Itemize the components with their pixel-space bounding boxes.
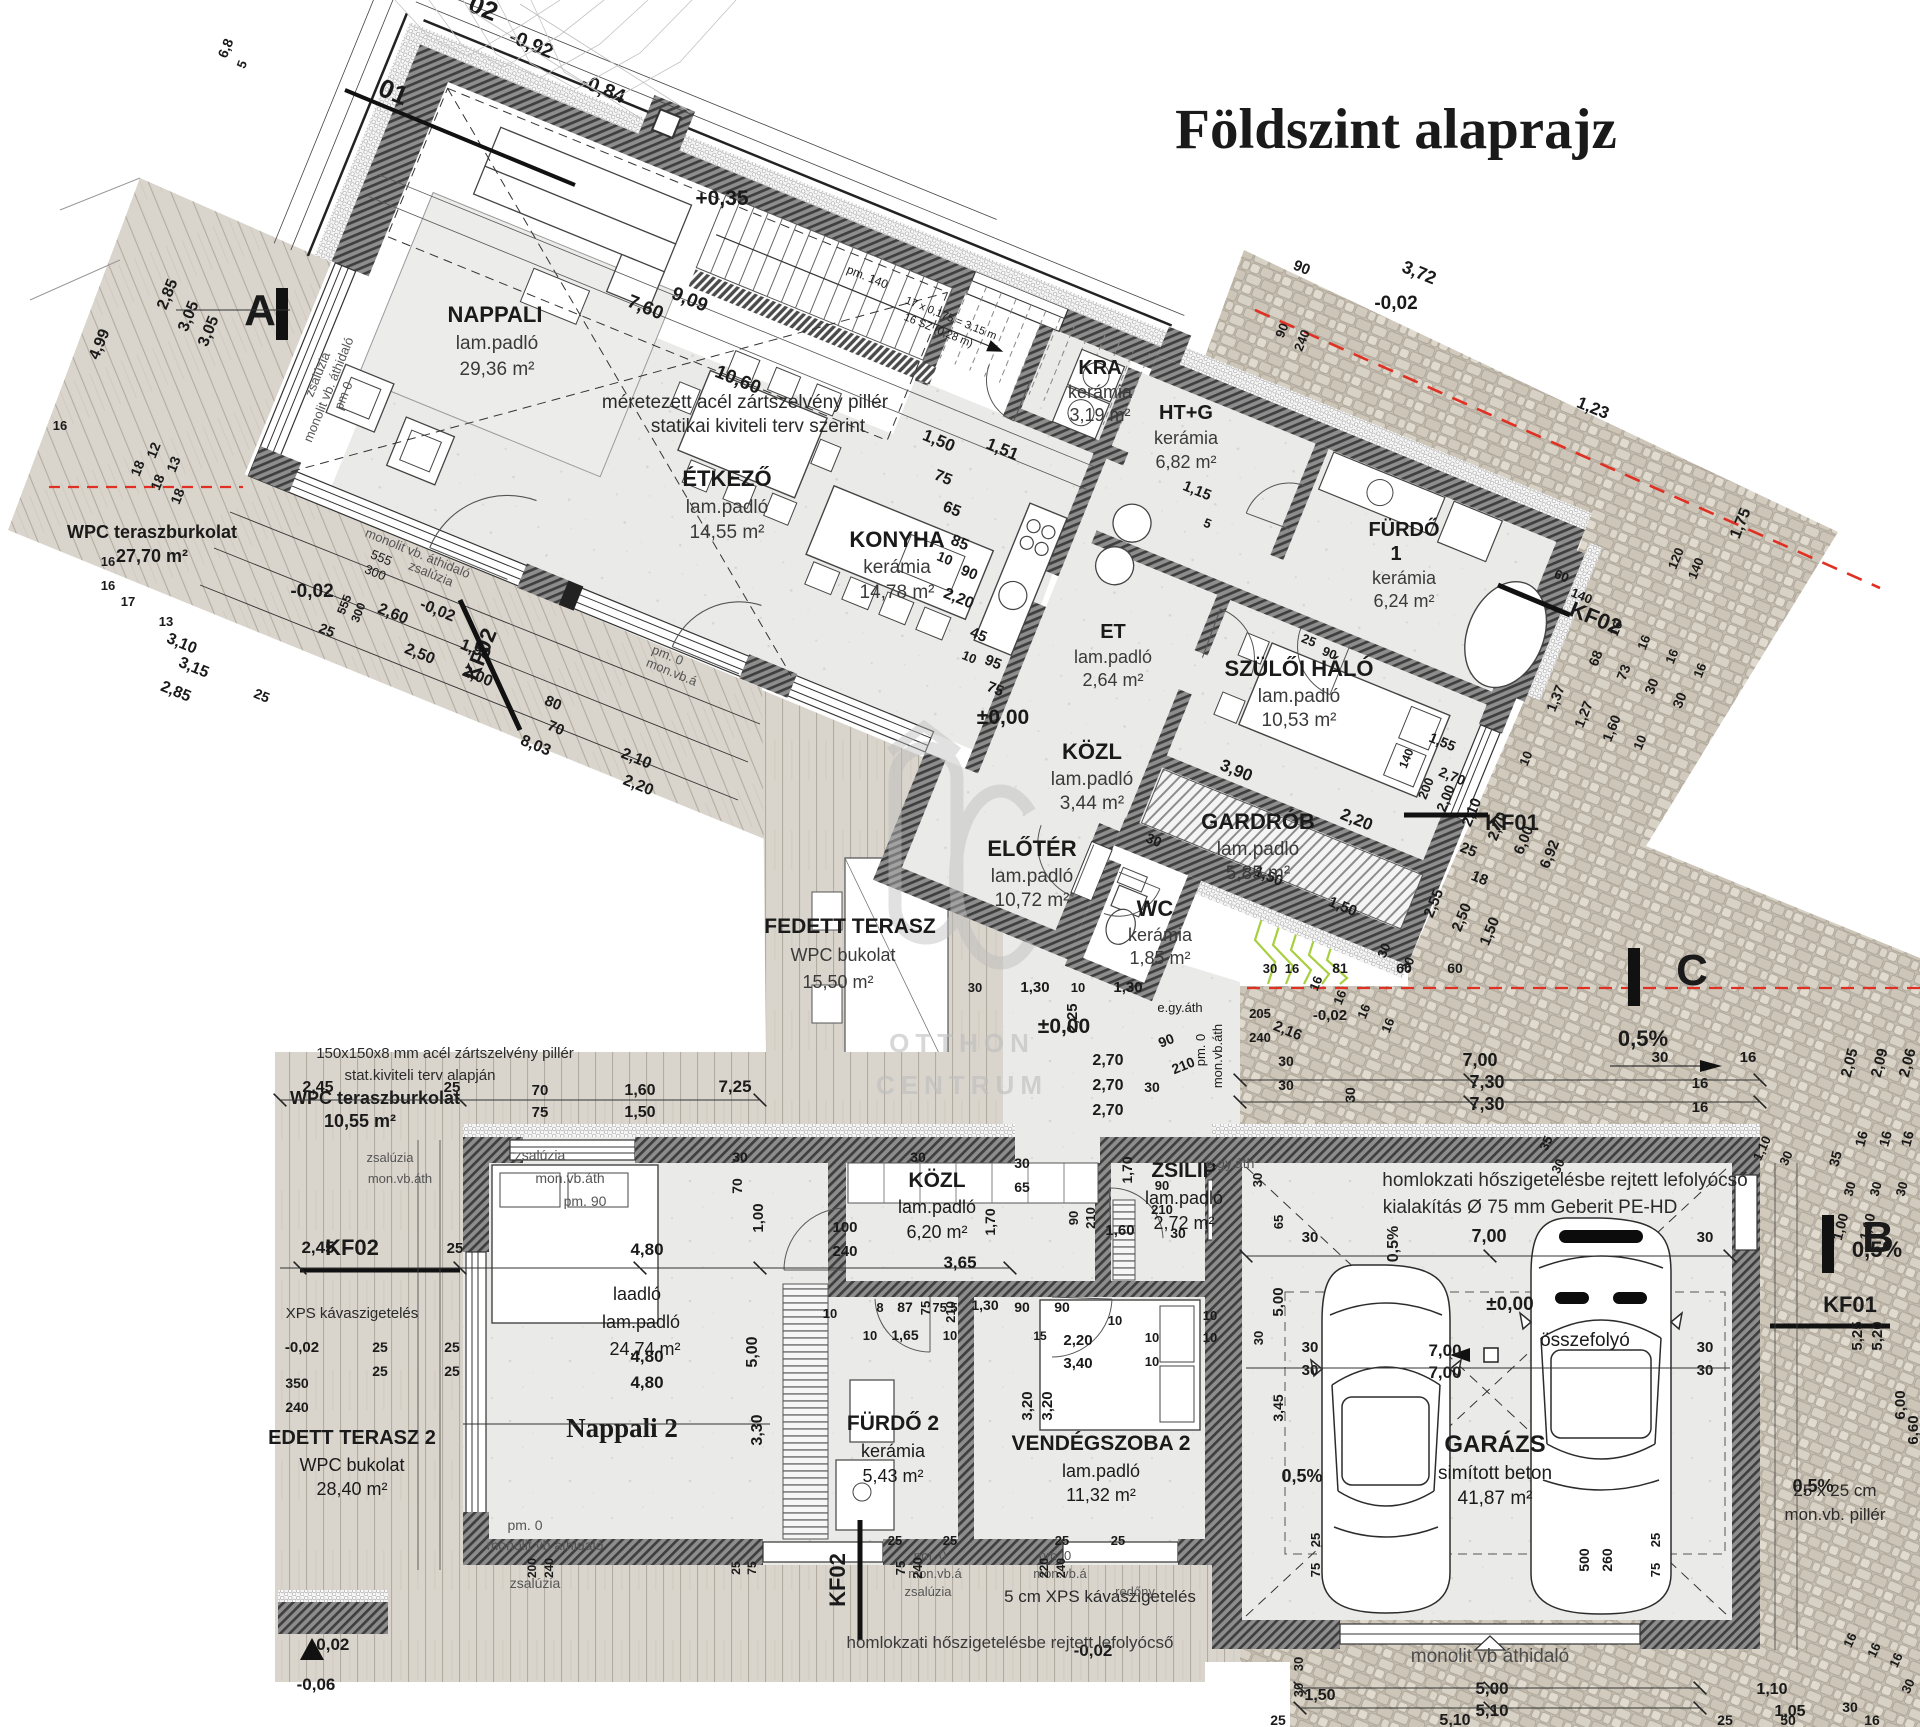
svg-text:2,25: 2,25 xyxy=(1064,1003,1081,1032)
svg-text:pm. 90: pm. 90 xyxy=(564,1193,607,1209)
svg-text:350: 350 xyxy=(285,1375,309,1391)
svg-text:5,00: 5,00 xyxy=(744,1336,761,1367)
svg-text:28,40 m²: 28,40 m² xyxy=(316,1479,387,1499)
svg-text:13: 13 xyxy=(159,614,173,629)
svg-text:81: 81 xyxy=(1332,960,1348,976)
svg-text:KÖZL: KÖZL xyxy=(908,1169,965,1192)
svg-text:30: 30 xyxy=(1697,1339,1714,1356)
svg-text:zsalúzia: zsalúzia xyxy=(515,1147,566,1163)
svg-text:90: 90 xyxy=(1014,1299,1030,1315)
svg-text:XPS kávaszigetelés: XPS kávaszigetelés xyxy=(286,1305,419,1322)
svg-text:1,60: 1,60 xyxy=(1105,1222,1134,1239)
svg-text:25: 25 xyxy=(372,1363,388,1379)
svg-text:30: 30 xyxy=(1342,1087,1358,1103)
svg-text:WPC teraszburkolat: WPC teraszburkolat xyxy=(67,522,237,542)
svg-text:0,5%: 0,5% xyxy=(1618,1026,1668,1051)
svg-text:+0,35: +0,35 xyxy=(695,187,748,210)
svg-text:27,70 m²: 27,70 m² xyxy=(116,546,188,566)
svg-text:5,25: 5,25 xyxy=(1849,1321,1866,1350)
svg-text:±0,00: ±0,00 xyxy=(977,706,1029,729)
svg-text:6,20 m²: 6,20 m² xyxy=(906,1222,967,1242)
svg-text:zsalúzia: zsalúzia xyxy=(905,1584,953,1599)
svg-text:30: 30 xyxy=(1302,1229,1319,1246)
svg-text:lam.padló: lam.padló xyxy=(1074,647,1152,667)
svg-text:kialakítás Ø 75 mm Geberit PE-: kialakítás Ø 75 mm Geberit PE-HD xyxy=(1383,1197,1678,1218)
svg-text:-0,02: -0,02 xyxy=(290,581,333,602)
svg-text:1,00: 1,00 xyxy=(750,1203,767,1232)
svg-text:KF01: KF01 xyxy=(1823,1292,1877,1317)
svg-text:75: 75 xyxy=(893,1561,908,1575)
svg-text:70: 70 xyxy=(532,1082,549,1099)
svg-text:5,43 m²: 5,43 m² xyxy=(862,1466,923,1486)
svg-text:GARÁZS: GARÁZS xyxy=(1444,1430,1545,1458)
svg-text:pm. 0: pm. 0 xyxy=(507,1517,542,1533)
svg-text:15,50 m²: 15,50 m² xyxy=(802,972,873,992)
svg-text:75: 75 xyxy=(918,1301,933,1315)
svg-text:25: 25 xyxy=(1308,1533,1323,1547)
svg-text:kerámia: kerámia xyxy=(1372,568,1437,588)
svg-text:1,70: 1,70 xyxy=(982,1208,998,1235)
svg-text:70: 70 xyxy=(729,1178,745,1194)
svg-text:30: 30 xyxy=(1697,1362,1714,1379)
svg-text:kerámia: kerámia xyxy=(1128,925,1193,945)
svg-text:16: 16 xyxy=(101,554,115,569)
svg-text:1,60: 1,60 xyxy=(624,1082,655,1099)
svg-text:e.gy.áth: e.gy.áth xyxy=(1157,1000,1202,1015)
svg-text:10: 10 xyxy=(943,1328,957,1343)
svg-text:OTTHON: OTTHON xyxy=(889,1028,1035,1058)
svg-text:6,24 m²: 6,24 m² xyxy=(1373,591,1434,611)
svg-text:2,20: 2,20 xyxy=(1063,1332,1092,1349)
svg-text:6,82 m²: 6,82 m² xyxy=(1155,452,1216,472)
svg-text:5 cm XPS kávaszigetelés: 5 cm XPS kávaszigetelés xyxy=(1004,1587,1196,1606)
svg-text:7,00: 7,00 xyxy=(1462,1050,1497,1070)
svg-text:6,00: 6,00 xyxy=(1892,1390,1909,1419)
svg-text:30: 30 xyxy=(1170,1225,1186,1241)
svg-text:simított beton: simított beton xyxy=(1438,1463,1552,1484)
svg-text:220: 220 xyxy=(1037,1558,1051,1578)
svg-text:pm. 0: pm. 0 xyxy=(1193,1034,1208,1067)
svg-text:0,5%: 0,5% xyxy=(1385,1226,1402,1262)
svg-text:WC: WC xyxy=(1137,896,1174,921)
svg-text:7,30: 7,30 xyxy=(1469,1072,1504,1092)
svg-text:4,80: 4,80 xyxy=(630,1347,663,1366)
svg-text:Földszint alaprajz: Földszint alaprajz xyxy=(1175,98,1617,161)
svg-text:5,00: 5,00 xyxy=(1475,1679,1508,1698)
svg-text:SZÜLŐI HÁLÓ: SZÜLŐI HÁLÓ xyxy=(1224,656,1373,681)
svg-text:WPC bukolat: WPC bukolat xyxy=(299,1455,404,1475)
svg-text:monolit vb áthidaló: monolit vb áthidaló xyxy=(487,1537,604,1553)
svg-text:25: 25 xyxy=(888,1533,902,1548)
svg-text:10: 10 xyxy=(1145,1330,1159,1345)
svg-text:16: 16 xyxy=(1285,961,1299,976)
svg-text:lam.padló: lam.padló xyxy=(1051,769,1133,790)
svg-text:lam.padló: lam.padló xyxy=(602,1312,680,1332)
svg-text:mon.vb. pillér: mon.vb. pillér xyxy=(1784,1505,1885,1524)
svg-text:25: 25 xyxy=(1055,1533,1069,1548)
svg-text:25: 25 xyxy=(444,1339,460,1355)
svg-text:14,78 m²: 14,78 m² xyxy=(860,582,935,603)
svg-text:C: C xyxy=(1676,946,1708,995)
svg-text:7,00: 7,00 xyxy=(1428,1363,1461,1382)
svg-text:25: 25 xyxy=(1270,1712,1286,1727)
svg-text:3,19 m²: 3,19 m² xyxy=(1069,405,1130,425)
svg-text:30: 30 xyxy=(1278,1077,1294,1093)
svg-text:EDETT TERASZ 2: EDETT TERASZ 2 xyxy=(268,1427,436,1449)
svg-text:-0,02: -0,02 xyxy=(285,1339,319,1356)
svg-text:±0,00: ±0,00 xyxy=(1486,1294,1533,1315)
svg-text:2,70: 2,70 xyxy=(1092,1052,1123,1069)
svg-text:1,30: 1,30 xyxy=(1020,979,1049,996)
svg-text:1,65: 1,65 xyxy=(891,1327,918,1343)
svg-text:kerámia: kerámia xyxy=(1068,382,1133,402)
svg-text:100: 100 xyxy=(832,1219,857,1236)
svg-text:lam.padló: lam.padló xyxy=(1258,686,1340,707)
svg-text:KÖZL: KÖZL xyxy=(1062,739,1122,764)
svg-text:30: 30 xyxy=(1263,961,1277,976)
svg-text:4,80: 4,80 xyxy=(630,1373,663,1392)
svg-text:25: 25 xyxy=(1648,1533,1663,1547)
svg-text:260: 260 xyxy=(1599,1548,1615,1572)
svg-text:2,70: 2,70 xyxy=(1092,1077,1123,1094)
svg-text:25: 25 xyxy=(444,1079,461,1096)
svg-text:41,87 m²: 41,87 m² xyxy=(1458,1488,1533,1509)
svg-text:150x150x8 mm acél zártszelvény: 150x150x8 mm acél zártszelvény pillér xyxy=(316,1045,574,1062)
svg-text:7,30: 7,30 xyxy=(1469,1094,1504,1114)
svg-text:1,85 m²: 1,85 m² xyxy=(1129,948,1190,968)
svg-text:65: 65 xyxy=(1014,1179,1030,1195)
svg-text:WPC bukolat: WPC bukolat xyxy=(790,945,895,965)
svg-text:30: 30 xyxy=(910,1149,926,1165)
svg-text:75: 75 xyxy=(1308,1563,1323,1577)
svg-text:KRA: KRA xyxy=(1078,357,1121,379)
svg-text:0,5%: 0,5% xyxy=(1792,1476,1833,1496)
svg-text:4,80: 4,80 xyxy=(630,1240,663,1259)
svg-text:50: 50 xyxy=(1780,1712,1796,1727)
svg-text:3,20: 3,20 xyxy=(1019,1391,1036,1420)
svg-text:5,85 m²: 5,85 m² xyxy=(1226,863,1290,884)
svg-text:16: 16 xyxy=(1692,1075,1709,1092)
svg-text:ÉTKEZŐ: ÉTKEZŐ xyxy=(682,466,771,491)
svg-text:210: 210 xyxy=(1151,1202,1173,1217)
svg-text:15: 15 xyxy=(1033,1329,1047,1343)
svg-text:kerámia: kerámia xyxy=(861,1441,926,1461)
svg-text:stat.kiviteli terv alapján: stat.kiviteli terv alapján xyxy=(345,1067,496,1084)
svg-text:1,70: 1,70 xyxy=(1119,1156,1135,1183)
svg-text:10: 10 xyxy=(823,1306,837,1321)
svg-text:240: 240 xyxy=(832,1243,857,1260)
svg-text:25: 25 xyxy=(729,1561,743,1575)
svg-text:8: 8 xyxy=(876,1300,883,1315)
svg-text:HT+G: HT+G xyxy=(1159,402,1213,424)
svg-text:240: 240 xyxy=(1054,1558,1068,1578)
svg-text:30: 30 xyxy=(968,980,982,995)
svg-text:3,20: 3,20 xyxy=(1039,1391,1056,1420)
svg-text:10: 10 xyxy=(863,1328,877,1343)
svg-text:7,00: 7,00 xyxy=(1471,1226,1506,1246)
svg-text:25: 25 xyxy=(447,1240,464,1257)
svg-text:10: 10 xyxy=(1203,1308,1217,1323)
svg-text:240: 240 xyxy=(542,1558,556,1578)
svg-text:60: 60 xyxy=(1396,960,1412,976)
svg-text:Nappali 2: Nappali 2 xyxy=(566,1413,678,1443)
svg-text:1,50: 1,50 xyxy=(624,1104,655,1121)
svg-text:2,45: 2,45 xyxy=(302,1079,333,1096)
svg-text:90: 90 xyxy=(1066,1211,1081,1225)
svg-text:-0,06: -0,06 xyxy=(297,1675,336,1694)
svg-text:16: 16 xyxy=(1740,1049,1757,1066)
svg-text:30: 30 xyxy=(1291,1657,1306,1671)
svg-text:5,20: 5,20 xyxy=(1869,1321,1886,1350)
svg-text:10: 10 xyxy=(1108,1313,1122,1328)
svg-text:75: 75 xyxy=(532,1104,549,1121)
svg-text:homlokzati hőszigetelésbe rejt: homlokzati hőszigetelésbe rejtett lefoly… xyxy=(847,1633,1174,1652)
svg-text:17: 17 xyxy=(121,594,135,609)
svg-text:75: 75 xyxy=(1648,1563,1663,1577)
svg-text:30: 30 xyxy=(1278,1053,1294,1069)
svg-text:-0,02: -0,02 xyxy=(1313,1007,1347,1024)
svg-text:25: 25 xyxy=(444,1363,460,1379)
svg-text:25: 25 xyxy=(1111,1533,1125,1548)
svg-text:e.gy.áth: e.gy.áth xyxy=(1206,1155,1255,1171)
svg-text:25: 25 xyxy=(943,1533,957,1548)
svg-text:lam.padló: lam.padló xyxy=(1062,1461,1140,1481)
svg-text:6,60: 6,60 xyxy=(1905,1415,1920,1444)
svg-text:16: 16 xyxy=(101,578,115,593)
svg-text:75: 75 xyxy=(745,1561,759,1575)
svg-text:lam.padló: lam.padló xyxy=(686,497,768,518)
svg-text:200: 200 xyxy=(525,1558,539,1578)
svg-text:VENDÉGSZOBA 2: VENDÉGSZOBA 2 xyxy=(1012,1432,1191,1455)
svg-text:10,55 m²: 10,55 m² xyxy=(324,1111,396,1131)
svg-text:FÜRDŐ: FÜRDŐ xyxy=(1368,518,1439,541)
svg-text:5,00: 5,00 xyxy=(1270,1287,1287,1316)
svg-text:10,53 m²: 10,53 m² xyxy=(1262,710,1337,731)
svg-text:lam.padló: lam.padló xyxy=(456,333,538,354)
svg-text:205: 205 xyxy=(1249,1006,1271,1021)
svg-text:30: 30 xyxy=(1014,1155,1030,1171)
svg-text:30: 30 xyxy=(1291,1683,1306,1697)
svg-text:lam.padló: lam.padló xyxy=(1217,839,1299,860)
svg-text:mon.vb.áth: mon.vb.áth xyxy=(368,1171,432,1186)
svg-text:1,50: 1,50 xyxy=(1304,1687,1335,1704)
svg-text:ELŐTÉR: ELŐTÉR xyxy=(987,836,1076,861)
svg-text:3,45: 3,45 xyxy=(1270,1394,1286,1421)
svg-text:KONYHA: KONYHA xyxy=(849,527,944,552)
svg-text:10: 10 xyxy=(1071,980,1085,995)
svg-text:240: 240 xyxy=(285,1399,309,1415)
svg-text:30: 30 xyxy=(1842,1699,1858,1715)
svg-text:lam.padló: lam.padló xyxy=(898,1197,976,1217)
svg-text:11,32 m²: 11,32 m² xyxy=(1066,1485,1136,1505)
svg-text:redőny: redőny xyxy=(1115,1584,1155,1599)
svg-text:FEDETT TERASZ: FEDETT TERASZ xyxy=(764,915,936,938)
svg-text:30: 30 xyxy=(1302,1339,1319,1356)
svg-text:240: 240 xyxy=(1249,1030,1271,1045)
svg-text:29,36 m²: 29,36 m² xyxy=(460,359,535,380)
svg-text:NAPPALI: NAPPALI xyxy=(448,302,543,327)
svg-text:1,30: 1,30 xyxy=(1113,979,1142,996)
svg-text:KF02: KF02 xyxy=(825,1553,850,1607)
svg-text:16: 16 xyxy=(1864,1712,1880,1727)
svg-text:kerámia: kerámia xyxy=(1154,428,1219,448)
svg-text:7,25: 7,25 xyxy=(718,1077,751,1096)
svg-text:25: 25 xyxy=(1717,1712,1733,1727)
svg-text:2,45: 2,45 xyxy=(301,1238,334,1257)
svg-text:87: 87 xyxy=(897,1299,913,1315)
svg-text:240: 240 xyxy=(910,1557,925,1579)
svg-text:16: 16 xyxy=(53,418,67,433)
svg-text:lam.padló: lam.padló xyxy=(991,866,1073,887)
svg-text:2,64 m²: 2,64 m² xyxy=(1082,670,1143,690)
svg-text:mon.vb.áth: mon.vb.áth xyxy=(535,1170,604,1186)
svg-text:14,55 m²: 14,55 m² xyxy=(690,522,765,543)
svg-text:CENTRUM: CENTRUM xyxy=(876,1070,1048,1100)
svg-text:monolit vb áthidaló: monolit vb áthidaló xyxy=(1411,1646,1569,1667)
svg-text:90: 90 xyxy=(1155,1178,1169,1193)
svg-text:30: 30 xyxy=(1144,1079,1160,1095)
svg-text:3,40: 3,40 xyxy=(1063,1355,1092,1372)
svg-text:mon.vb.áth: mon.vb.áth xyxy=(1210,1024,1225,1088)
svg-text:10,72 m²: 10,72 m² xyxy=(995,890,1070,911)
svg-text:75 5: 75 5 xyxy=(932,1300,957,1315)
svg-text:7,00: 7,00 xyxy=(1428,1341,1461,1360)
svg-text:1: 1 xyxy=(1390,543,1401,565)
svg-text:GARDRÓB: GARDRÓB xyxy=(1201,809,1315,834)
svg-text:90: 90 xyxy=(1054,1299,1070,1315)
svg-text:laadló: laadló xyxy=(613,1284,661,1304)
svg-text:összefolyó: összefolyó xyxy=(1540,1330,1630,1351)
svg-text:3,65: 3,65 xyxy=(943,1253,976,1272)
svg-text:30: 30 xyxy=(732,1149,748,1165)
svg-text:30: 30 xyxy=(1302,1362,1319,1379)
svg-text:30: 30 xyxy=(1652,1049,1669,1066)
svg-text:210: 210 xyxy=(1083,1207,1098,1229)
svg-text:zsalúzia: zsalúzia xyxy=(367,1150,415,1165)
svg-text:3,30: 3,30 xyxy=(749,1414,766,1445)
svg-text:méretezett acél zártszelvény p: méretezett acél zártszelvény pillér xyxy=(602,392,889,413)
svg-text:25: 25 xyxy=(372,1339,388,1355)
svg-text:1,10: 1,10 xyxy=(1756,1681,1787,1698)
svg-text:2,70: 2,70 xyxy=(1092,1102,1123,1119)
svg-text:5,10: 5,10 xyxy=(1439,1712,1470,1727)
svg-text:30: 30 xyxy=(1250,1173,1265,1187)
svg-text:30: 30 xyxy=(1251,1331,1266,1345)
svg-text:0,5%: 0,5% xyxy=(1852,1237,1902,1262)
svg-text:1,30: 1,30 xyxy=(971,1297,998,1313)
svg-text:10: 10 xyxy=(1203,1330,1217,1345)
svg-text:statikai kiviteli terv szerint: statikai kiviteli terv szerint xyxy=(651,416,866,437)
svg-text:kerámia: kerámia xyxy=(863,557,931,578)
svg-text:ET: ET xyxy=(1100,621,1126,643)
svg-text:0,5%: 0,5% xyxy=(1281,1466,1322,1486)
svg-text:FÜRDŐ 2: FÜRDŐ 2 xyxy=(847,1412,939,1435)
svg-text:65: 65 xyxy=(1271,1215,1286,1229)
svg-text:500: 500 xyxy=(1576,1548,1592,1572)
svg-text:-0,02: -0,02 xyxy=(1374,293,1417,314)
svg-text:10: 10 xyxy=(1145,1354,1159,1369)
svg-text:60: 60 xyxy=(1447,960,1463,976)
svg-text:30: 30 xyxy=(1697,1229,1714,1246)
svg-text:3,44 m²: 3,44 m² xyxy=(1060,793,1124,814)
svg-text:homlokzati hőszigetelésbe rejt: homlokzati hőszigetelésbe rejtett lefoly… xyxy=(1382,1170,1747,1191)
